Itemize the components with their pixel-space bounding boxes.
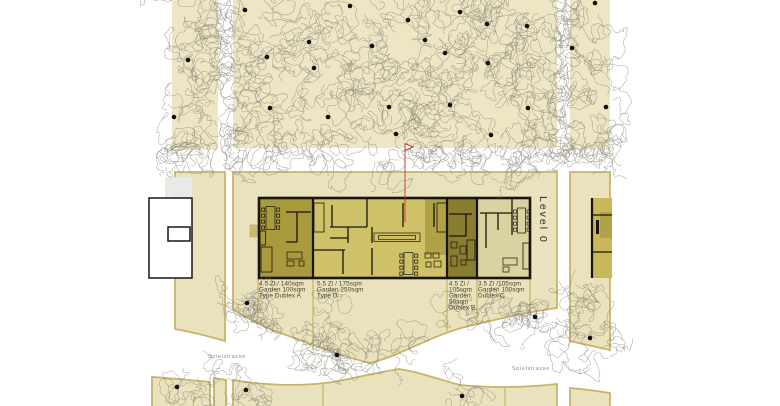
tree-dot [458,10,463,15]
white-building-annex [168,227,190,241]
tree-dot [394,132,399,137]
right-building [592,198,612,278]
tree-dot [460,394,465,399]
neighbour-building [149,177,192,278]
unit-type-d-wetroom [425,198,447,255]
tree-dot [526,106,531,111]
tree-dot [172,115,177,120]
unit-a-annotation: 4.5 Zi / 140sqm Garden 100sqm Type Duble… [259,281,305,300]
tree-dot [443,51,448,56]
tree-dot [186,58,191,63]
tree-dot [265,55,270,60]
level-label: Level 0 [537,196,549,244]
tree-dot [326,115,331,120]
tree-dot [348,4,353,9]
tree-dot [489,133,494,138]
tree-dot [525,24,530,29]
tree-dot [423,38,428,43]
plot-south-main [233,369,557,406]
tree-dot [604,105,609,110]
tree-dot [307,40,312,45]
tree-dot [335,353,340,358]
tree-dot [312,66,317,71]
tree-dot [175,385,180,390]
unit-dublex-a-floor [259,198,313,278]
tree-dot [593,1,598,6]
unit-b-line: Dublex B [449,305,475,312]
tree-dot [243,8,248,13]
site-plan: Level 0 4.5 Zi / 140sqm Garden 100sqm Ty… [0,0,780,406]
unit-c-line: Dublex C [478,293,505,300]
tree-dot [268,106,273,111]
building-floorplan [250,198,530,278]
unit-dublex-c-floor [477,198,530,278]
south-plots [152,369,610,406]
site-plan-drawing: Level 0 4.5 Zi / 140sqm Garden 100sqm Ty… [0,0,780,406]
tree-dot [245,301,250,306]
street-label-left: Spielstrasse [208,354,246,360]
tree-dot [387,105,392,110]
tree-dot [448,103,453,108]
tree-dot [570,46,575,51]
tree-dot [486,61,491,66]
entry-porch [250,225,259,237]
forest-field [570,0,610,150]
gray-annex [165,177,192,197]
tree-dot [588,336,593,341]
street-label-right: Spielstrasse [512,366,550,372]
tree-dot [244,388,249,393]
tree-dot [485,22,490,27]
tree-dot [533,315,538,320]
unit-a-line: Type Dublex A [259,293,302,300]
tree-dot [370,44,375,49]
unit-d-line: Type D [317,293,338,300]
tree-dot [406,18,411,23]
plot-south-right [570,388,610,406]
